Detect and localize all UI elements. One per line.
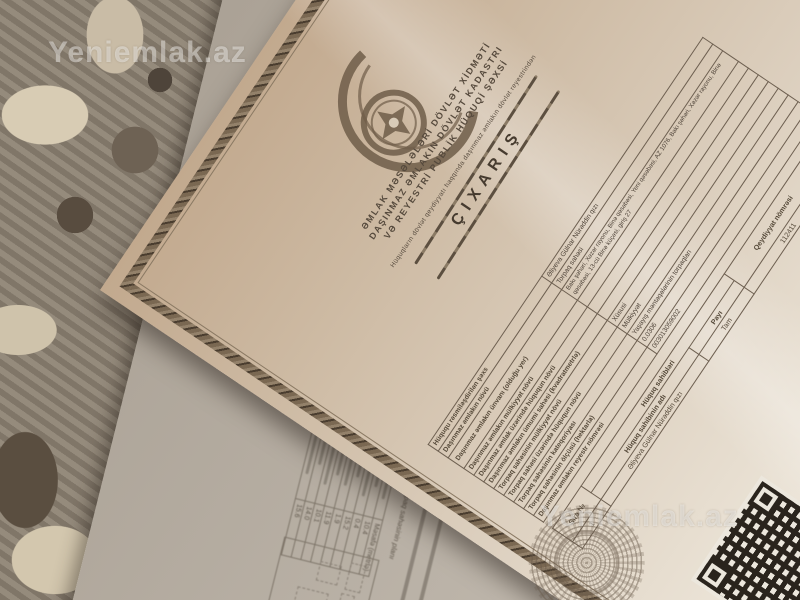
- watermark-top-left: Yeniemlak.az: [48, 36, 247, 70]
- watermark-bottom-right: Yeniemlak.az: [540, 500, 739, 534]
- photo-of-documents-on-carpet: Torpaq sahəsinin planı Məsafə (metrlə) 1…: [0, 0, 800, 600]
